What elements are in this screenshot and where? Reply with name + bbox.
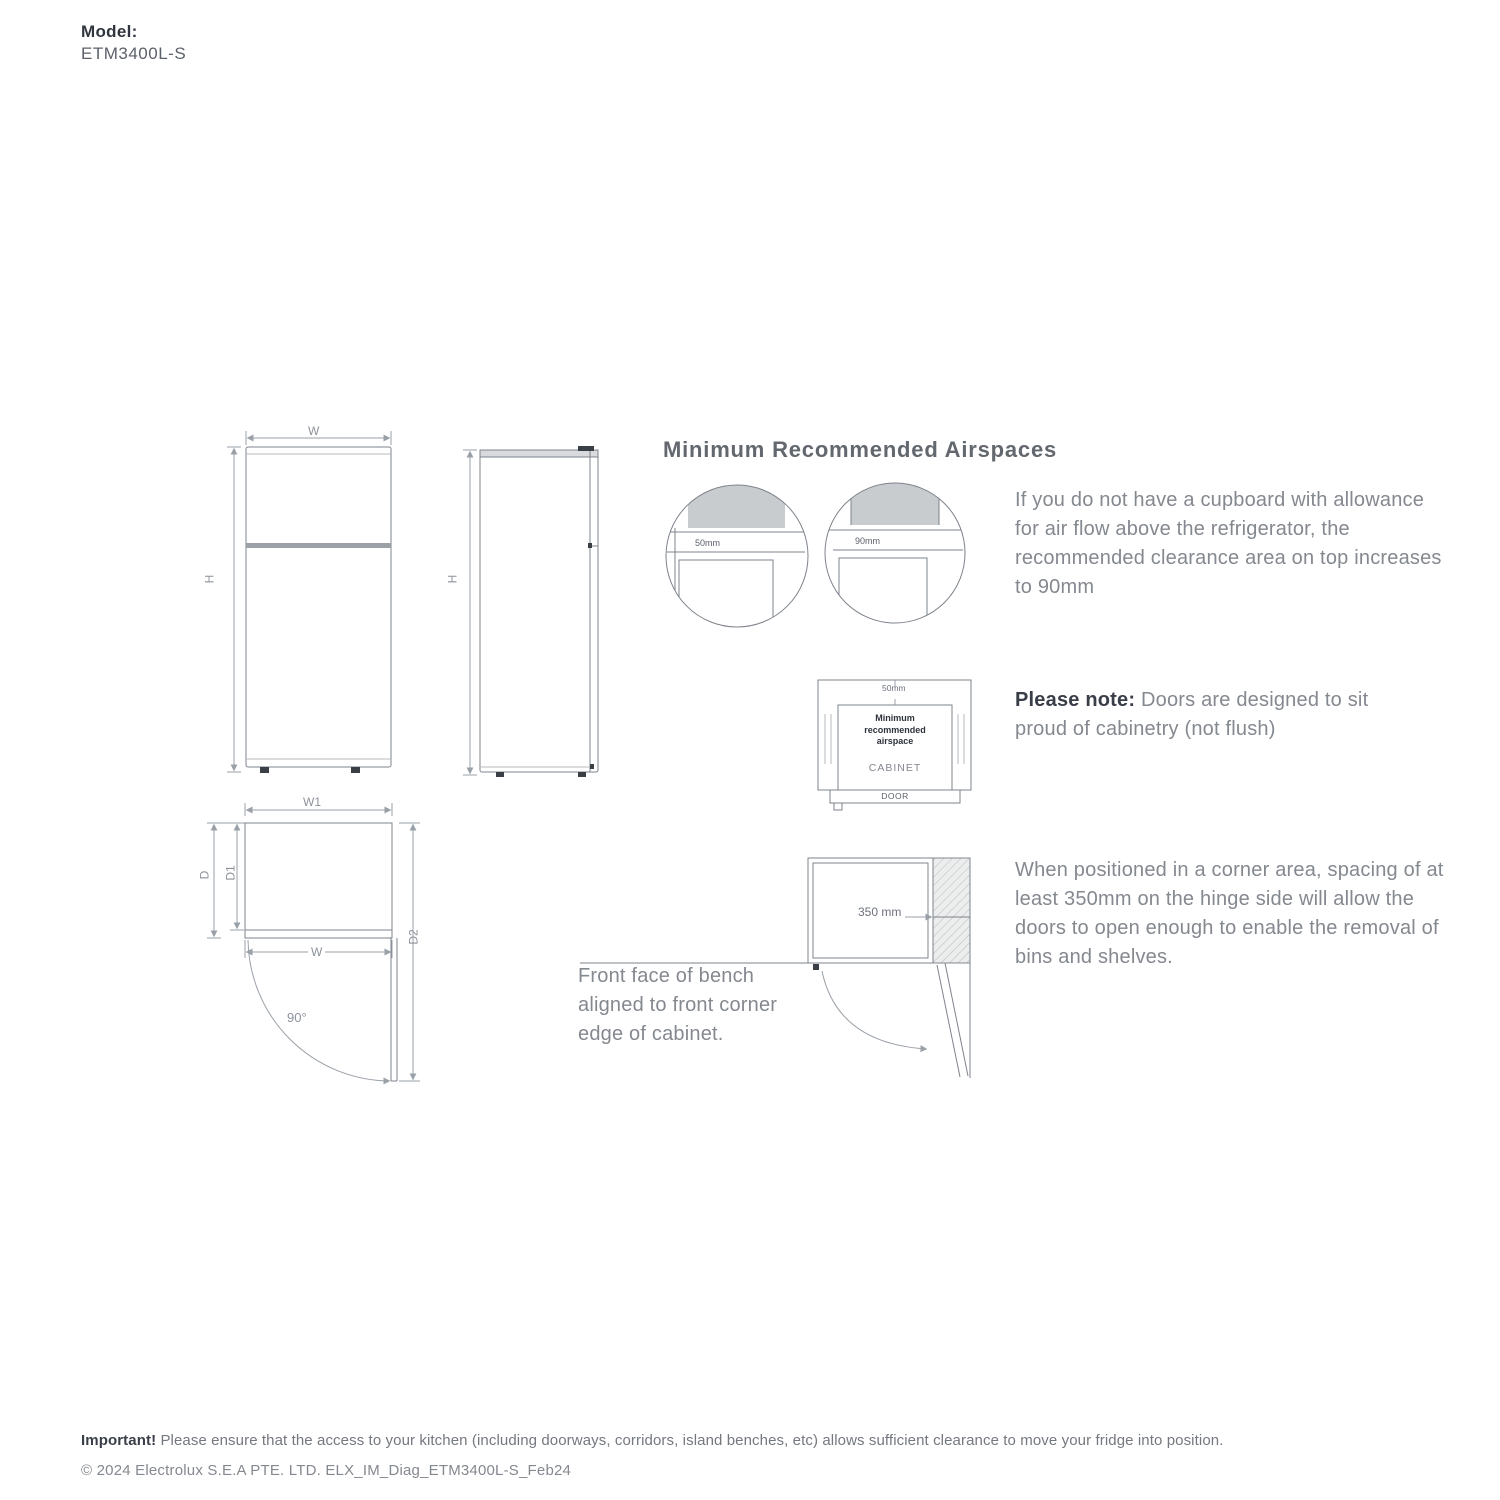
cupboard-note: If you do not have a cupboard with allow… bbox=[1015, 486, 1447, 602]
model-header: Model: ETM3400L-S bbox=[81, 22, 186, 64]
front-height-dimension bbox=[227, 447, 241, 772]
open-door bbox=[391, 938, 397, 1081]
w1-label: W1 bbox=[303, 795, 321, 809]
airspace-circles-diagram: 50mm 90mm bbox=[655, 470, 985, 648]
w-door-label: W bbox=[308, 945, 325, 959]
please-note-bold: Please note: bbox=[1015, 689, 1135, 711]
hinge-mark bbox=[813, 964, 819, 970]
top-cap bbox=[480, 450, 598, 457]
corner-wall bbox=[933, 858, 970, 963]
fridge-foot bbox=[351, 767, 360, 773]
model-label: Model: bbox=[81, 22, 186, 42]
door-swing-arc bbox=[248, 940, 389, 1081]
footer-copyright: © 2024 Electrolux S.E.A PTE. LTD. ELX_IM… bbox=[81, 1462, 1441, 1479]
circle-left-detail: 50mm bbox=[663, 478, 811, 630]
fridge-front-outline bbox=[246, 447, 391, 773]
d2-label: D2 bbox=[407, 929, 421, 944]
d-label: D bbox=[197, 871, 211, 880]
d1-label: D1 bbox=[224, 865, 238, 880]
please-note: Please note: Doors are designed to sit p… bbox=[1015, 686, 1425, 744]
door-divider bbox=[246, 543, 391, 548]
circle-left-gap-label: 50mm bbox=[695, 538, 720, 548]
door-label: DOOR bbox=[845, 791, 945, 801]
model-value: ETM3400L-S bbox=[81, 44, 186, 64]
open-door-diagonal bbox=[937, 963, 968, 1077]
corner-spacing-label: 350 mm bbox=[858, 905, 901, 919]
door-angle-label: 90° bbox=[287, 1010, 307, 1025]
footer-important-rest: Please ensure that the access to your ki… bbox=[156, 1432, 1223, 1449]
door-handle bbox=[578, 446, 594, 451]
fridge-top-outline bbox=[245, 823, 392, 938]
cabinet-top-gap-label: 50mm bbox=[882, 683, 906, 693]
fridge-top-section bbox=[679, 560, 773, 630]
caster bbox=[834, 803, 842, 810]
cabinet-airspace-note: Minimum recommended airspace bbox=[845, 713, 945, 748]
fridge-foot bbox=[496, 772, 504, 777]
footer-important-bold: Important! bbox=[81, 1432, 156, 1449]
fridge-foot bbox=[260, 767, 269, 773]
fridge-foot bbox=[578, 772, 586, 777]
door-swing-arc bbox=[822, 971, 926, 1049]
corner-note: When positioned in a corner area, spacin… bbox=[1015, 856, 1455, 972]
d2-dimension bbox=[399, 823, 420, 1081]
side-height-label: H bbox=[445, 575, 459, 584]
side-view-diagram bbox=[440, 420, 640, 785]
fridge-side-outline bbox=[480, 446, 598, 777]
fridge-top-section bbox=[839, 558, 927, 626]
footer-important: Important! Please ensure that the access… bbox=[81, 1432, 1441, 1449]
airspaces-heading: Minimum Recommended Airspaces bbox=[663, 437, 1057, 463]
front-view-diagram bbox=[200, 415, 420, 780]
cabinet-label: CABINET bbox=[845, 762, 945, 774]
top-view-diagram bbox=[190, 788, 440, 1090]
front-height-label: H bbox=[202, 575, 216, 584]
corner-diagram bbox=[575, 845, 1005, 1085]
closed-door-face bbox=[245, 930, 392, 938]
installation-diagram-page: Model: ETM3400L-S bbox=[0, 0, 1500, 1500]
front-width-label: W bbox=[308, 424, 319, 438]
circle-right-gap-label: 90mm bbox=[855, 536, 880, 546]
side-height-dimension bbox=[463, 450, 477, 775]
